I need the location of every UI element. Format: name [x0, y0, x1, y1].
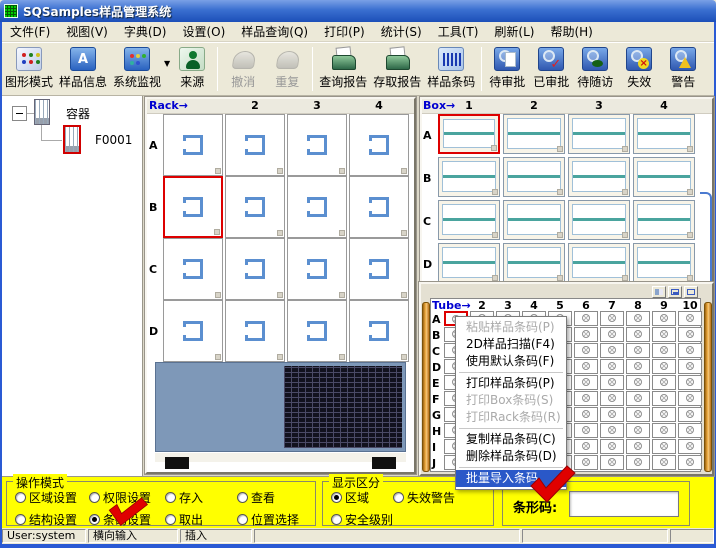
search-check-icon	[538, 47, 564, 71]
tube-slot-icon	[582, 442, 590, 450]
tube-cell-H9[interactable]	[652, 423, 676, 438]
toolbar-button[interactable]: 已审批	[529, 45, 573, 93]
rack-slot-icon	[307, 321, 327, 341]
menu-item[interactable]: 打印(P)	[316, 23, 373, 40]
container-node-icon[interactable]	[34, 99, 50, 125]
tube-cell-J8[interactable]	[626, 455, 650, 470]
radio-button	[15, 514, 26, 525]
tube-slot-icon	[608, 442, 616, 450]
resize-corner	[622, 232, 628, 238]
tube-cell-J9[interactable]	[652, 455, 676, 470]
tube-slot-icon	[686, 346, 694, 354]
box-cell-B3[interactable]	[568, 157, 630, 197]
resize-corner	[687, 189, 693, 195]
status-panel: 插入	[180, 529, 252, 543]
tube-cell-E8[interactable]	[626, 375, 650, 390]
resize-corner	[214, 229, 220, 235]
tube-slot-icon	[686, 426, 694, 434]
tube-cell-B10[interactable]	[678, 327, 702, 342]
resize-corner	[401, 230, 407, 236]
radio-option[interactable]: 存入	[165, 489, 237, 506]
resize-corner	[339, 354, 345, 360]
menu-item[interactable]: 工具(T)	[430, 23, 487, 40]
rack-panel: Rack→234ABCD	[145, 97, 416, 474]
tube-cell-D9[interactable]	[652, 359, 676, 374]
radio-option[interactable]: 查看	[237, 489, 323, 506]
box-grid: Box→1234ABCD	[423, 99, 695, 286]
menu-item[interactable]: 字典(D)	[116, 23, 175, 40]
freezer-node-label[interactable]: F0001	[95, 133, 132, 147]
box-slot-icon	[572, 118, 626, 149]
search-follow-icon	[582, 47, 608, 71]
resize-corner	[277, 292, 283, 298]
app-icon	[4, 4, 18, 18]
box-cell-D3[interactable]	[568, 243, 630, 283]
tube-slot-icon	[634, 378, 642, 386]
rack-cell-D3[interactable]	[287, 300, 347, 362]
box-slot-icon	[637, 204, 691, 235]
toolbar-button-label: 已审批	[533, 73, 569, 90]
tube-cell-C9[interactable]	[652, 343, 676, 358]
tree-connector	[41, 140, 62, 141]
rack-cell-D1[interactable]	[163, 300, 223, 362]
tube-cell-C10[interactable]	[678, 343, 702, 358]
radio-button	[89, 514, 100, 525]
rack-cell-A2[interactable]	[225, 114, 285, 176]
tube-cell-G9[interactable]	[652, 407, 676, 422]
tube-cell-C8[interactable]	[626, 343, 650, 358]
tube-col-header: 4	[522, 299, 546, 311]
toolbar-button-wrap: 预警	[705, 45, 714, 93]
red-check-arrow	[104, 491, 150, 531]
tube-slot-icon	[686, 394, 694, 402]
rack-slot-icon	[369, 197, 389, 217]
box-cell-B2[interactable]	[503, 157, 565, 197]
container-tree-panel: 容器 F0001	[2, 96, 143, 476]
box-side-handle	[700, 192, 712, 296]
tube-cell-B9[interactable]	[652, 327, 676, 342]
tube-row-label: C	[432, 343, 442, 359]
box-cell-A2[interactable]	[503, 114, 565, 154]
tube-cell-F10[interactable]	[678, 391, 702, 406]
box-cell-A1[interactable]	[438, 114, 500, 154]
tube-slot-icon	[582, 362, 590, 370]
toolbar-button[interactable]: 来源	[170, 45, 214, 93]
box-cell-A4[interactable]	[633, 114, 695, 154]
tube-cell-A8[interactable]	[626, 311, 650, 326]
toolbar-button-label: 来源	[180, 73, 204, 90]
rack-slot-icon	[245, 135, 265, 155]
box-cell-D1[interactable]	[438, 243, 500, 283]
tube-split-button[interactable]	[652, 286, 666, 298]
rack-cell-D4[interactable]	[349, 300, 409, 362]
box-cell-A3[interactable]	[568, 114, 630, 154]
toolbar-button[interactable]: 查询报告	[316, 45, 370, 93]
rack-slot-icon	[307, 259, 327, 279]
tube-right-handle	[704, 302, 712, 472]
toolbar-button[interactable]: 样品信息	[56, 45, 110, 93]
box-slot-icon	[442, 204, 496, 235]
freezer-foot	[165, 457, 189, 469]
toolbar-button[interactable]: 系统监视	[110, 45, 164, 93]
menu-item[interactable]: 设置(O)	[174, 23, 233, 40]
radio-button	[331, 492, 342, 503]
tube-row-label: B	[432, 327, 442, 343]
tube-cell-I10[interactable]	[678, 439, 702, 454]
context-menu-item: 打印Rack条码(R)	[456, 409, 566, 426]
tube-row-label: D	[432, 359, 442, 375]
toolbar-button-label: 待审批	[489, 73, 525, 90]
radio-label: 结构设置	[29, 511, 77, 528]
dots-grid-icon	[16, 47, 42, 71]
resize-corner	[622, 189, 628, 195]
toolbar-button-label: 待随访	[577, 73, 613, 90]
radio-option[interactable]: 取出	[165, 511, 237, 528]
rack-slot-icon	[183, 259, 203, 279]
tube-slot-icon	[608, 330, 616, 338]
box-cell-C1[interactable]	[438, 200, 500, 240]
tube-cell-B8[interactable]	[626, 327, 650, 342]
rack-slot-icon	[369, 135, 389, 155]
box-cell-D2[interactable]	[503, 243, 565, 283]
tube-cell-F8[interactable]	[626, 391, 650, 406]
toolbar-button-label: 重复	[275, 73, 299, 90]
rack-cell-C2[interactable]	[225, 238, 285, 300]
radio-button	[331, 514, 342, 525]
toolbar-button-wrap: 撤消	[221, 45, 265, 93]
rack-cell-B1[interactable]	[163, 176, 223, 238]
toolbar-button-wrap: 待审批	[485, 45, 529, 93]
toolbar-button-label: 失效	[627, 73, 651, 90]
box-slot-icon	[507, 118, 561, 149]
tube-cell-H10[interactable]	[678, 423, 702, 438]
tube-slot-icon	[634, 442, 642, 450]
rack-cell-D2[interactable]	[225, 300, 285, 362]
tube-slot-icon	[660, 346, 668, 354]
tube-slot-icon	[582, 426, 590, 434]
status-bar: User:system横向输入插入	[2, 528, 714, 544]
toolbar-button-wrap: 系统监视▼	[110, 45, 170, 93]
resize-corner	[401, 292, 407, 298]
rack-cell-A4[interactable]	[349, 114, 409, 176]
menu-item[interactable]: 文件(F)	[2, 23, 58, 40]
tube-slot-icon	[686, 314, 694, 322]
tube-cell-J7[interactable]	[600, 455, 624, 470]
tube-slot-icon	[660, 458, 668, 466]
printer-icon	[384, 47, 410, 71]
resize-corner	[277, 230, 283, 236]
menu-item[interactable]: 样品查询(Q)	[233, 23, 316, 40]
resize-corner	[401, 354, 407, 360]
resize-corner	[215, 168, 221, 174]
toolbar-button: 撤消	[221, 45, 265, 93]
resize-corner	[277, 354, 283, 360]
rack-cell-C4[interactable]	[349, 238, 409, 300]
resize-corner	[557, 146, 563, 152]
tube-cell-E7[interactable]	[600, 375, 624, 390]
radio-label: 失效警告	[407, 489, 455, 506]
tube-cell-I9[interactable]	[652, 439, 676, 454]
tube-cell-D10[interactable]	[678, 359, 702, 374]
tube-cell-E6[interactable]	[574, 375, 598, 390]
tube-left-handle	[422, 302, 430, 472]
radio-option[interactable]: 区域设置	[15, 489, 89, 506]
freezer-foot	[372, 457, 396, 469]
box-cell-B1[interactable]	[438, 157, 500, 197]
box-slot-icon	[572, 247, 626, 278]
tube-slot-icon	[582, 410, 590, 418]
context-menu-item[interactable]: 打印样品条码(P)	[456, 375, 566, 392]
tube-cell-G7[interactable]	[600, 407, 624, 422]
radio-label: 存入	[179, 489, 203, 506]
redo-icon	[274, 47, 300, 71]
radio-button	[89, 492, 100, 503]
toolbar-button-wrap: 查询报告	[316, 45, 370, 93]
toolbar-button-label: 存取报告	[373, 73, 421, 90]
tube-cell-I7[interactable]	[600, 439, 624, 454]
toolbar-button-wrap: 已审批	[529, 45, 573, 93]
tube-cell-H8[interactable]	[626, 423, 650, 438]
box-slot-icon	[572, 161, 626, 192]
tube-cell-F9[interactable]	[652, 391, 676, 406]
box-slot-icon	[507, 247, 561, 278]
toolbar: 图形模式样品信息系统监视▼来源撤消重复查询报告存取报告样品条码待审批已审批待随访…	[2, 42, 714, 96]
tube-cell-I6[interactable]	[574, 439, 598, 454]
tube-cell-G6[interactable]	[574, 407, 598, 422]
rack-slot-icon	[307, 197, 327, 217]
radio-option[interactable]: 位置选择	[237, 511, 323, 528]
tube-cell-E9[interactable]	[652, 375, 676, 390]
box-slot-icon	[637, 161, 691, 192]
resize-corner	[491, 145, 497, 151]
tube-slot-icon	[634, 330, 642, 338]
tube-slot-icon	[660, 314, 668, 322]
box-cell-C4[interactable]	[633, 200, 695, 240]
tube-slot-icon	[608, 362, 616, 370]
tree-connector	[27, 113, 34, 114]
rack-slot-icon	[245, 321, 265, 341]
radio-button	[15, 492, 26, 503]
box-cell-D4[interactable]	[633, 243, 695, 283]
box-slot-icon	[443, 119, 495, 148]
tube-cell-D7[interactable]	[600, 359, 624, 374]
rack-cell-A1[interactable]	[163, 114, 223, 176]
toolbar-button-wrap: 待随访	[573, 45, 617, 93]
box-col-header: 3	[568, 99, 630, 114]
box-cell-C2[interactable]	[503, 200, 565, 240]
tube-cell-H6[interactable]	[574, 423, 598, 438]
radio-button	[165, 492, 176, 503]
box-panel: Box→1234ABCD	[420, 97, 714, 289]
tube-cell-A10[interactable]	[678, 311, 702, 326]
tube-cell-C6[interactable]	[574, 343, 598, 358]
tube-slot-icon	[686, 330, 694, 338]
rack-cell-B2[interactable]	[225, 176, 285, 238]
printer-icon	[330, 47, 356, 71]
tree-connector	[41, 125, 42, 140]
toolbar-button[interactable]: 样品条码	[424, 45, 478, 93]
radio-option[interactable]: 失效警告	[393, 489, 489, 506]
toolbar-button-wrap: 来源	[170, 45, 214, 93]
box-slot-icon	[637, 118, 691, 149]
window-border-bottom	[0, 544, 716, 548]
tube-col-header: 8	[626, 299, 650, 311]
tube-slot-icon	[686, 378, 694, 386]
tube-slot-icon	[686, 458, 694, 466]
tube-slot-icon	[634, 458, 642, 466]
box-row-label: A	[423, 114, 435, 157]
tube-maximize-button[interactable]	[684, 286, 698, 298]
tube-cell-J10[interactable]	[678, 455, 702, 470]
tube-row-label: H	[432, 423, 442, 439]
radio-label: 区域设置	[29, 489, 77, 506]
tube-slot-icon	[660, 394, 668, 402]
tube-col-header: 5	[548, 299, 572, 311]
resize-corner	[339, 292, 345, 298]
tube-slot-icon	[634, 362, 642, 370]
tube-cell-H7[interactable]	[600, 423, 624, 438]
barcode-icon	[438, 47, 464, 71]
menu-item[interactable]: 统计(S)	[373, 23, 430, 40]
tube-row-label: A	[432, 311, 442, 327]
tube-cell-E10[interactable]	[678, 375, 702, 390]
toolbar-button[interactable]: 待随访	[573, 45, 617, 93]
tube-cell-A9[interactable]	[652, 311, 676, 326]
tube-slot-icon	[608, 378, 616, 386]
resize-corner	[622, 275, 628, 281]
tube-slot-icon	[582, 314, 590, 322]
context-menu-item[interactable]: 复制样品条码(C)	[456, 431, 566, 448]
rack-cell-C1[interactable]	[163, 238, 223, 300]
tube-cell-F7[interactable]	[600, 391, 624, 406]
toolbar-button[interactable]: 待审批	[485, 45, 529, 93]
context-menu-item[interactable]: 使用默认条码(F)	[456, 353, 566, 370]
toolbar-button[interactable]: 预警	[705, 45, 714, 93]
tube-cell-D8[interactable]	[626, 359, 650, 374]
toolbar-button: 重复	[265, 45, 309, 93]
toolbar-button-label: 系统监视	[113, 73, 161, 90]
rack-slot-icon	[183, 135, 203, 155]
radio-label: 区域	[345, 489, 369, 506]
rack-slot-icon	[245, 197, 265, 217]
rack-slot-icon	[183, 197, 203, 217]
menu-item[interactable]: 视图(V)	[58, 23, 116, 40]
radio-label: 安全级别	[345, 511, 393, 528]
box-slot-icon	[507, 204, 561, 235]
rack-cell-B3[interactable]	[287, 176, 347, 238]
box-row-label: C	[423, 200, 435, 243]
tube-minimize-button[interactable]	[668, 286, 682, 298]
tube-cell-A7[interactable]	[600, 311, 624, 326]
tube-cell-I8[interactable]	[626, 439, 650, 454]
rack-col-header: 2	[225, 99, 285, 114]
tube-slot-icon	[608, 314, 616, 322]
resize-corner	[622, 146, 628, 152]
context-menu-item[interactable]: 删除样品条码(D)	[456, 448, 566, 465]
resize-corner	[339, 168, 345, 174]
toolbar-button[interactable]: 存取报告	[370, 45, 424, 93]
undo-icon	[230, 47, 256, 71]
toolbar-button-wrap: 警告	[661, 45, 705, 93]
context-menu-item[interactable]: 2D样品扫描(F4)	[456, 336, 566, 353]
tube-slot-icon	[634, 314, 642, 322]
freezer-node-icon[interactable]	[63, 125, 81, 154]
rack-slot-icon	[183, 321, 203, 341]
radio-button	[237, 514, 248, 525]
resize-corner	[557, 189, 563, 195]
tube-cell-B6[interactable]	[574, 327, 598, 342]
menu-item[interactable]: 帮助(H)	[542, 23, 600, 40]
rack-col-header: 3	[287, 99, 347, 114]
search-warning-icon	[670, 47, 696, 71]
toolbar-button-label: 撤消	[231, 73, 255, 90]
toolbar-separator	[481, 47, 482, 91]
toolbar-button[interactable]: 图形模式	[2, 45, 56, 93]
tube-cell-F6[interactable]	[574, 391, 598, 406]
resize-corner	[687, 232, 693, 238]
rack-slot-icon	[369, 321, 389, 341]
radio-label: 位置选择	[251, 511, 299, 528]
tube-cell-G10[interactable]	[678, 407, 702, 422]
tube-cell-D6[interactable]	[574, 359, 598, 374]
radio-label: 查看	[251, 489, 275, 506]
toolbar-button-label: 图形模式	[5, 73, 53, 90]
container-node-label[interactable]: 容器	[66, 105, 90, 122]
box-slot-icon	[442, 161, 496, 192]
toolbar-button[interactable]: 失效	[617, 45, 661, 93]
tube-row-label: G	[432, 407, 442, 423]
radio-option[interactable]: 结构设置	[15, 511, 89, 528]
menu-separator	[459, 428, 563, 429]
tube-slot-icon	[660, 378, 668, 386]
rack-cell-B4[interactable]	[349, 176, 409, 238]
toolbar-button-label: 查询报告	[319, 73, 367, 90]
tree-collapse-toggle[interactable]	[12, 106, 27, 121]
menu-bar: 文件(F)视图(V)字典(D)设置(O)样品查询(Q)打印(P)统计(S)工具(…	[2, 22, 714, 42]
tube-slot-icon	[634, 394, 642, 402]
barcode-input[interactable]	[569, 491, 679, 517]
resize-corner	[687, 275, 693, 281]
tube-cell-A6[interactable]	[574, 311, 598, 326]
radio-option[interactable]: 安全级别	[331, 511, 393, 528]
rack-row-label: C	[149, 238, 161, 300]
toolbar-button[interactable]: 警告	[661, 45, 705, 93]
toolbar-button-wrap: 样品信息	[56, 45, 110, 93]
rack-slot-icon	[245, 259, 265, 279]
tube-col-header: 7	[600, 299, 624, 311]
tube-cell-C7[interactable]	[600, 343, 624, 358]
resize-corner	[687, 146, 693, 152]
box-row-label: B	[423, 157, 435, 200]
tube-slot-icon	[608, 410, 616, 418]
resize-corner	[557, 232, 563, 238]
tube-slot-icon	[634, 410, 642, 418]
tube-row-label: J	[432, 455, 442, 471]
tube-slot-icon	[608, 426, 616, 434]
box-cell-B4[interactable]	[633, 157, 695, 197]
radio-option[interactable]: 区域	[331, 489, 393, 506]
tube-cell-B7[interactable]	[600, 327, 624, 342]
box-cell-C3[interactable]	[568, 200, 630, 240]
radio-button	[165, 514, 176, 525]
menu-item[interactable]: 刷新(L)	[486, 23, 542, 40]
rack-cell-C3[interactable]	[287, 238, 347, 300]
toolbar-separator	[217, 47, 218, 91]
radio-button	[237, 492, 248, 503]
tube-slot-icon	[582, 394, 590, 402]
tube-cell-G8[interactable]	[626, 407, 650, 422]
rack-cell-A3[interactable]	[287, 114, 347, 176]
